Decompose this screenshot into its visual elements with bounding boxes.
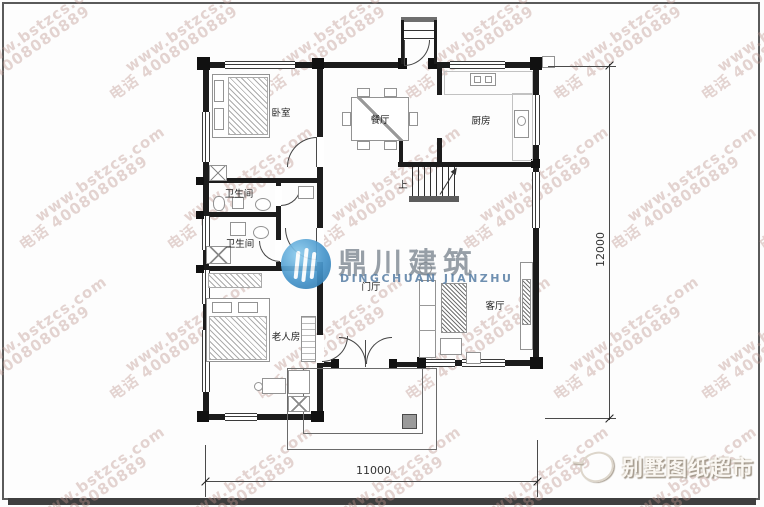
window	[425, 359, 455, 367]
floor-plan: 卧室 餐厅 厨房 卫生间 卫生间 老人房 门厅 客厅 上 11000 12000	[0, 0, 764, 507]
door-opening	[316, 228, 324, 262]
furniture-blanket	[228, 77, 268, 135]
window	[202, 112, 210, 162]
bottom-brand-text: 别墅图纸超市	[622, 452, 754, 482]
bath-sink	[253, 226, 269, 239]
entry-canopy	[401, 17, 437, 22]
column	[196, 265, 204, 273]
sofa-cushion-line	[419, 330, 436, 331]
furniture-pillow	[238, 302, 258, 313]
furniture-chair	[357, 141, 370, 150]
top-entry-door-arc	[404, 40, 430, 66]
window	[450, 61, 505, 69]
column	[196, 211, 204, 219]
room-label-dining: 餐厅	[370, 112, 389, 126]
window	[532, 172, 540, 228]
bath-sink	[255, 198, 271, 211]
bath2-door-arc	[259, 241, 280, 262]
dimension-height-label: 12000	[594, 232, 607, 267]
furniture-chair	[384, 88, 397, 97]
bottom-brand-logo: 别墅图纸超市	[580, 452, 754, 482]
window	[225, 413, 257, 421]
cooktop-burner	[474, 76, 481, 83]
dimension-width-label: 11000	[356, 464, 391, 477]
column	[417, 357, 426, 368]
window	[202, 216, 210, 250]
dimension-extension-line	[545, 418, 616, 419]
column	[530, 57, 542, 70]
door-leaf	[404, 40, 405, 66]
furniture-pillow	[214, 108, 224, 130]
furniture-cabinet	[209, 165, 227, 181]
room-label-kitchen: 厨房	[471, 113, 490, 127]
furniture-chair	[384, 141, 397, 150]
wall-segment	[434, 20, 437, 64]
coffee-table	[440, 338, 462, 355]
room-label-foyer: 门厅	[361, 279, 380, 293]
door-leaf	[365, 340, 366, 367]
furniture-desk	[262, 378, 286, 394]
room-label-bath-2: 卫生间	[226, 236, 255, 250]
plant	[419, 262, 432, 275]
column	[530, 357, 543, 369]
furniture-chair	[254, 382, 263, 391]
tv	[522, 279, 531, 325]
furniture-chair	[342, 112, 351, 126]
hall-door-arc	[285, 228, 317, 260]
column	[331, 359, 339, 368]
furniture-dresser	[208, 273, 262, 288]
furniture-chair	[357, 88, 370, 97]
furniture-sofa	[419, 280, 436, 358]
dimension-line-width	[205, 481, 538, 482]
stairs-up-label: 上	[398, 177, 408, 191]
dimension-extension-line	[537, 440, 538, 497]
floor-plan-page: www.bstzcs.com电话 4008080889www.bstzcs.co…	[0, 0, 764, 507]
hall-cabinet	[298, 186, 314, 199]
wall-segment	[203, 212, 281, 217]
furniture-cabinet	[288, 396, 310, 412]
sink-basin	[517, 116, 526, 126]
room-label-bedroom: 卧室	[271, 105, 290, 119]
toilet	[213, 196, 225, 211]
entry-step-line	[404, 38, 434, 39]
door-opening	[316, 137, 324, 167]
porch-column	[402, 414, 417, 429]
bedroom-door-arc	[287, 137, 317, 167]
column	[197, 411, 209, 422]
cart-icon	[577, 449, 616, 485]
column	[312, 58, 324, 69]
door-leaf	[316, 228, 317, 260]
dimension-line-height	[609, 64, 610, 420]
wall-segment	[437, 68, 442, 95]
furniture-blanket	[209, 316, 267, 360]
furniture-cabinet	[288, 370, 310, 394]
room-label-bath-1: 卫生间	[225, 186, 254, 200]
furniture-wardrobe	[301, 316, 316, 362]
column	[196, 177, 204, 185]
dimension-extension-line	[205, 445, 206, 497]
washing-machine	[230, 222, 246, 236]
stairs-landing-edge	[409, 196, 459, 202]
room-label-elder-room: 老人房	[272, 329, 301, 343]
window	[225, 61, 295, 69]
furniture-pillow	[212, 302, 232, 313]
wall-segment	[203, 266, 323, 271]
furniture-chair	[409, 112, 418, 126]
furniture-pillow	[214, 80, 224, 102]
rug	[441, 283, 467, 333]
door-leaf	[316, 137, 317, 167]
room-label-living: 客厅	[485, 298, 504, 312]
entry-double-door-arc-right	[366, 337, 392, 364]
sofa-cushion-line	[419, 305, 436, 306]
wall-segment	[399, 140, 403, 167]
entry-double-door-arc-left	[339, 337, 366, 364]
cooktop-burner	[485, 76, 492, 83]
window	[532, 95, 540, 145]
ottoman	[466, 352, 481, 364]
entry-step-line	[404, 30, 434, 31]
column	[197, 57, 210, 70]
